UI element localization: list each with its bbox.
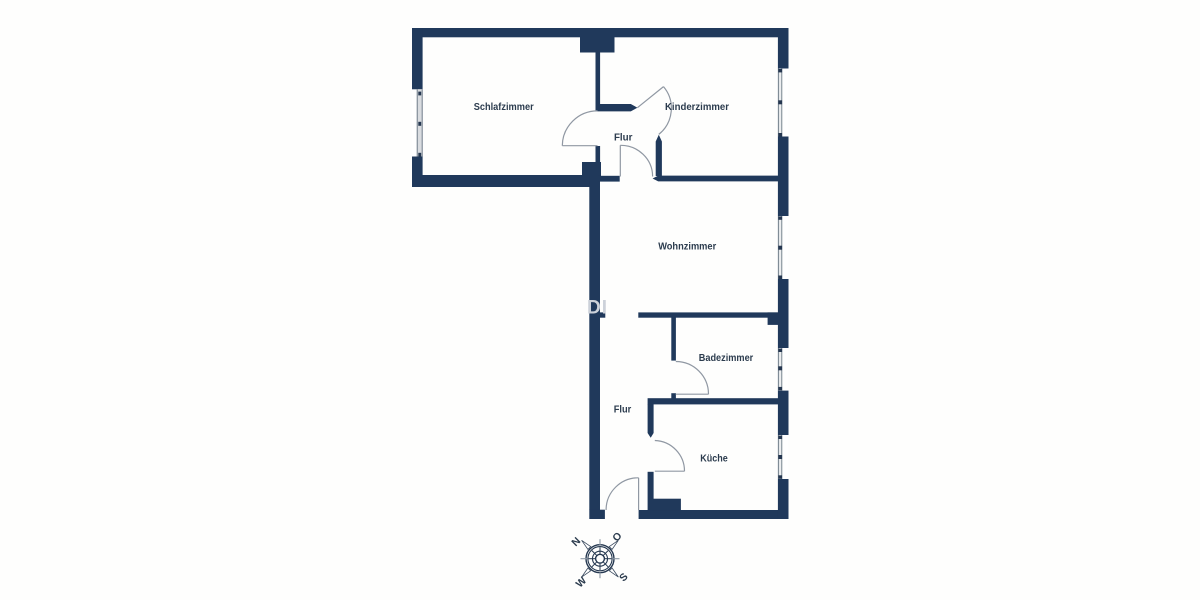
svg-text:DI: DI <box>587 298 608 319</box>
svg-text:Wohnzimmer: Wohnzimmer <box>658 241 716 253</box>
svg-text:Flur: Flur <box>614 132 633 144</box>
svg-text:Badezimmer: Badezimmer <box>699 352 754 364</box>
svg-text:Schlafzimmer: Schlafzimmer <box>474 101 534 113</box>
svg-text:Kinderzimmer: Kinderzimmer <box>665 101 729 113</box>
svg-text:Küche: Küche <box>700 453 728 465</box>
svg-text:Flur: Flur <box>614 403 632 415</box>
